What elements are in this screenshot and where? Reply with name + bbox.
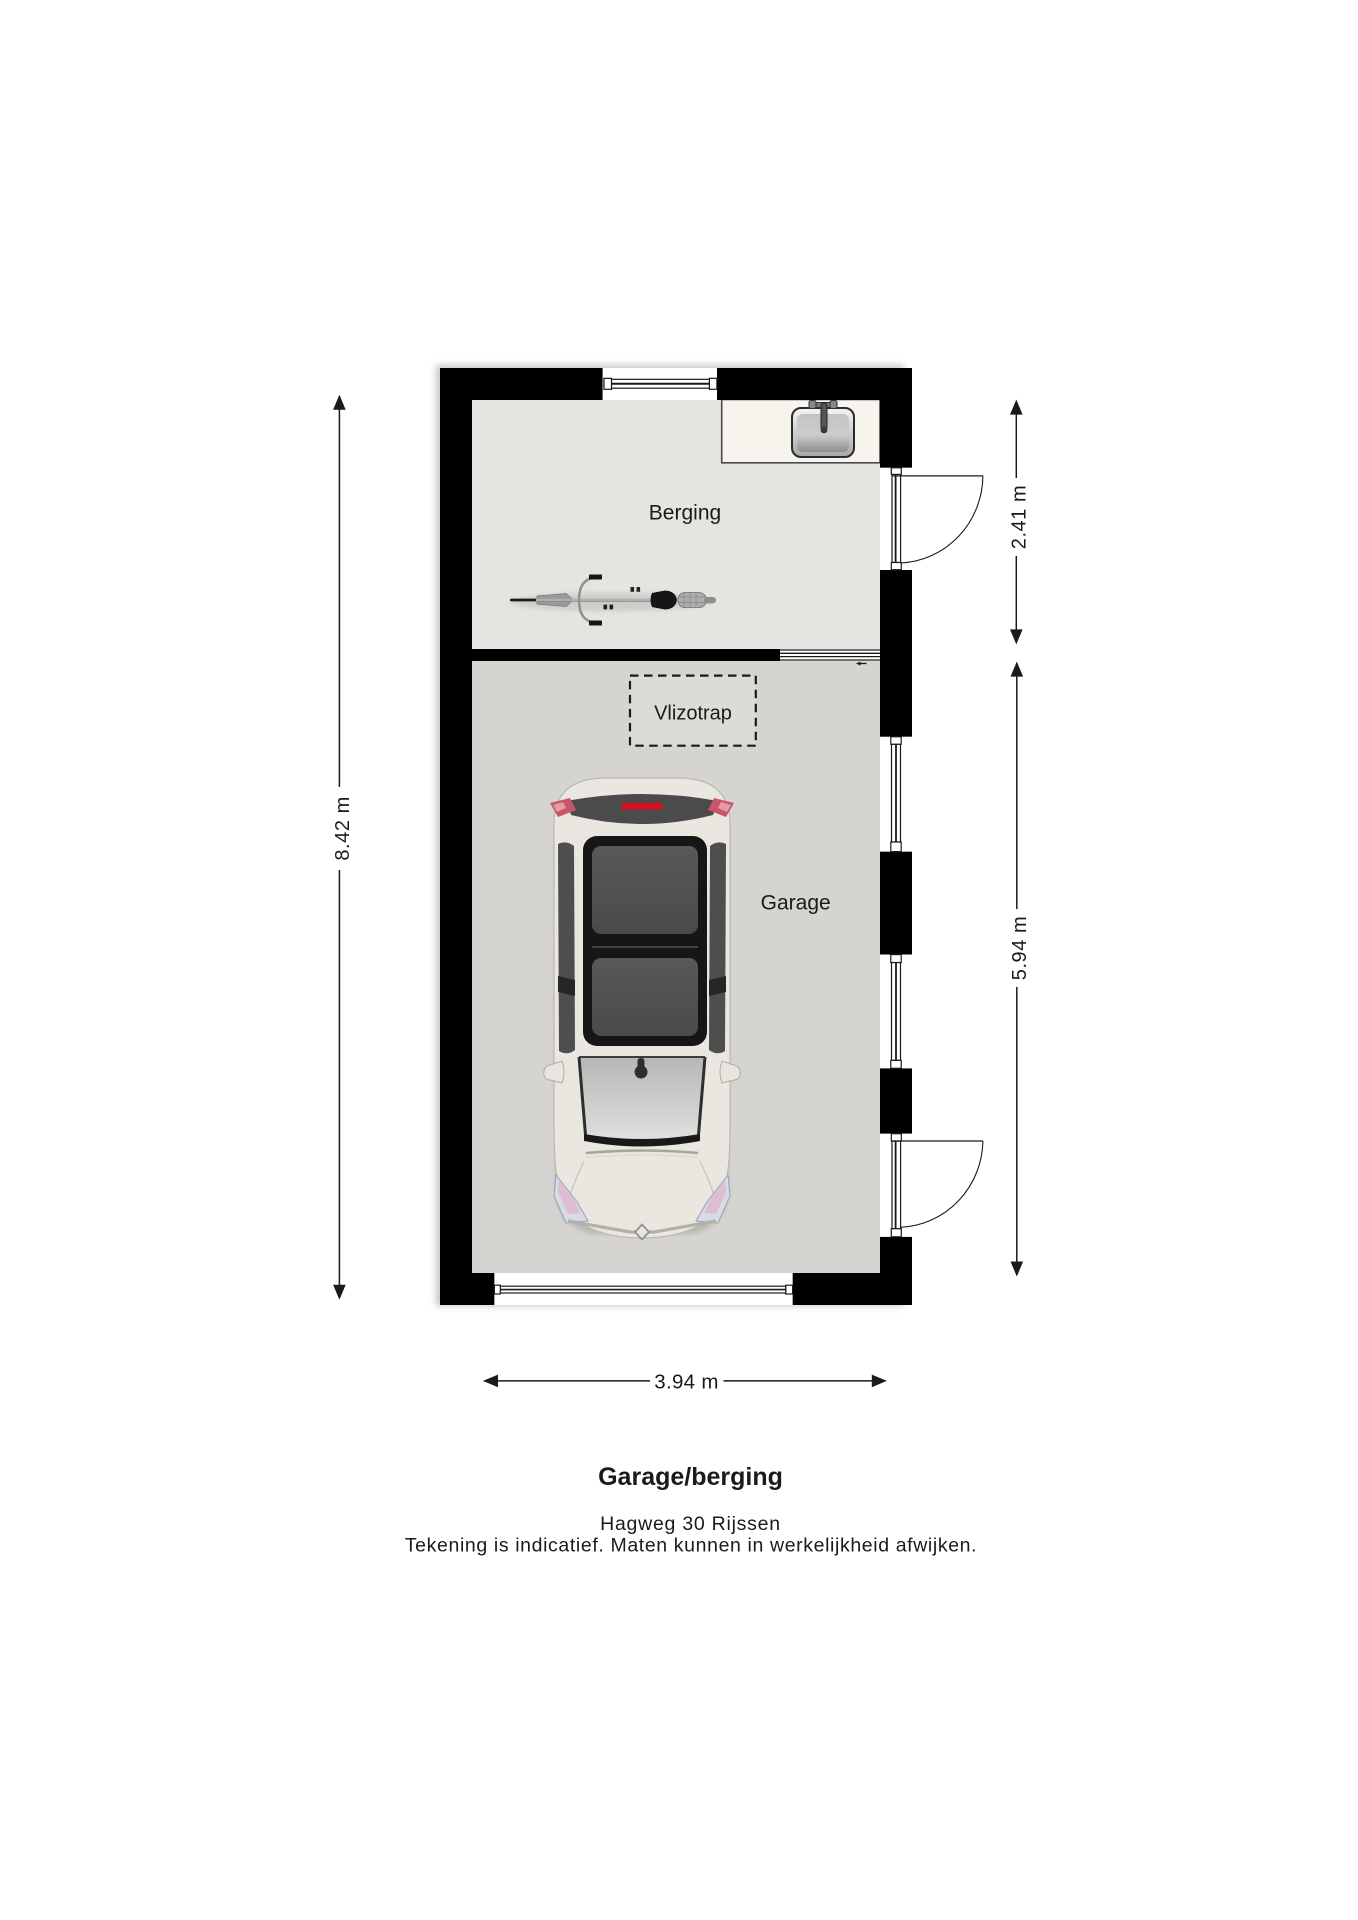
svg-text:Tekening is indicatief. Maten: Tekening is indicatief. Maten kunnen in …	[405, 1535, 977, 1557]
svg-text:5.94 m: 5.94 m	[1009, 916, 1031, 980]
svg-text:Hagweg 30 Rijssen: Hagweg 30 Rijssen	[600, 1513, 781, 1535]
svg-text:3.94 m: 3.94 m	[654, 1370, 718, 1393]
svg-text:8.42 m: 8.42 m	[332, 796, 354, 860]
svg-text:Garage: Garage	[761, 892, 831, 915]
svg-text:Vlizotrap: Vlizotrap	[654, 703, 732, 725]
svg-text:Berging: Berging	[649, 502, 721, 525]
svg-text:2.41 m: 2.41 m	[1009, 485, 1031, 549]
svg-text:Garage/berging: Garage/berging	[598, 1463, 783, 1491]
